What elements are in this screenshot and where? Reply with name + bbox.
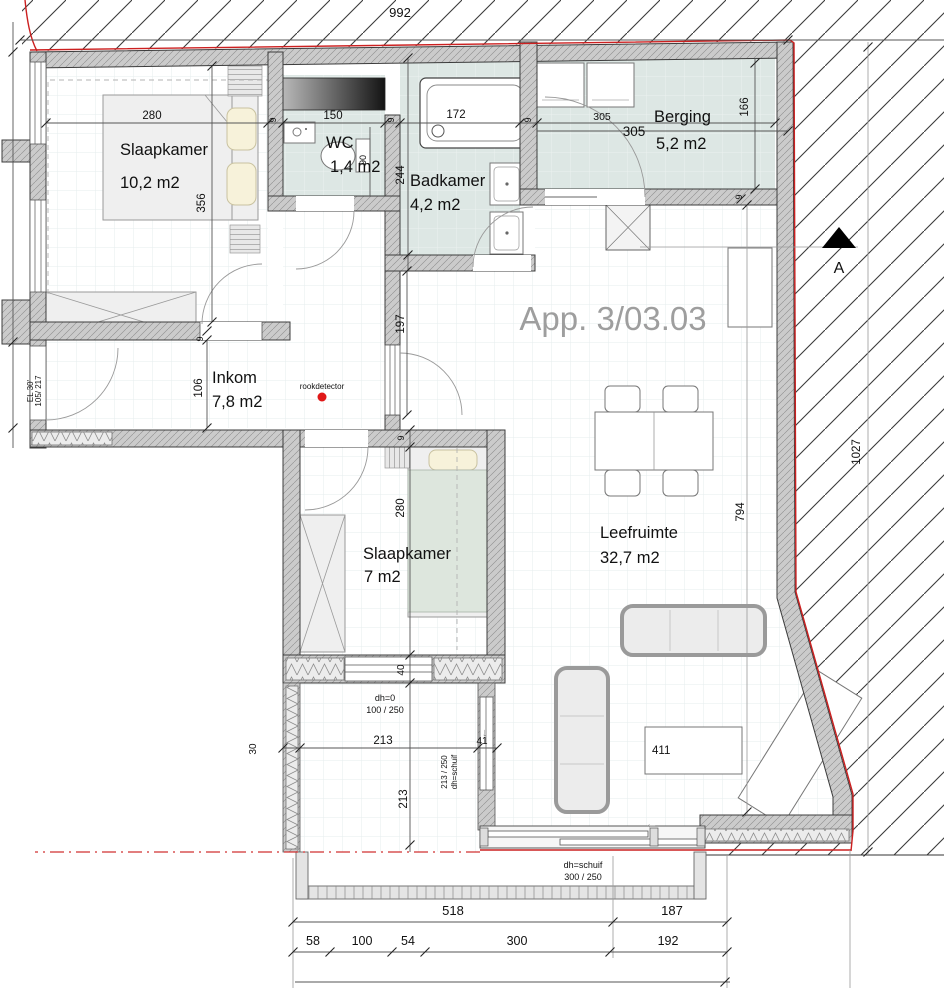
dim-inkom-depth: 106 xyxy=(193,378,205,397)
bathroom-sink xyxy=(490,163,523,205)
dim-sk2-depth: 280 xyxy=(395,498,407,517)
pillow xyxy=(429,450,477,470)
room-name-berging: Berging xyxy=(654,108,711,126)
dim-wc-width: 150 xyxy=(323,110,342,122)
dim-berg-width-a: 305 xyxy=(593,111,611,123)
slide-door-type: dh=schuif xyxy=(450,754,459,789)
bathtub xyxy=(420,78,530,148)
room-name-leefruimte: Leefruimte xyxy=(600,524,678,542)
wall-stub xyxy=(2,140,30,162)
dining-table xyxy=(595,412,713,470)
wall-wc-left xyxy=(268,52,283,211)
wc-sink xyxy=(284,122,315,143)
window xyxy=(30,200,46,292)
dim-518: 518 xyxy=(442,903,464,918)
bathroom-sink xyxy=(490,212,523,254)
floorplan-page: A 992 1027 Slaapkamer 10,2 m2 280 356 9 … xyxy=(0,0,946,1000)
smoke-detector-label: rookdetector xyxy=(300,382,345,391)
balcony-door-size: 100 / 250 xyxy=(366,705,404,715)
dim-wall: 9 xyxy=(734,194,744,199)
dim-54: 54 xyxy=(401,934,415,948)
smoke-detector xyxy=(318,393,327,402)
dim-sk1-width: 280 xyxy=(142,110,161,122)
apartment-title: App. 3/03.03 xyxy=(519,300,706,337)
shaft xyxy=(606,205,650,250)
dim-site-width: 992 xyxy=(389,5,411,20)
cabinet-tall xyxy=(728,248,772,327)
dim-leef-depth: 794 xyxy=(735,502,747,522)
room-area-slaapkamer1: 10,2 m2 xyxy=(120,174,180,192)
dim-wall: 9 xyxy=(523,117,533,122)
kitchen-counter xyxy=(283,78,385,110)
dim-58: 58 xyxy=(306,934,320,948)
dim-cabinet: 411 xyxy=(652,745,670,757)
room-area-inkom: 7,8 m2 xyxy=(212,393,262,411)
dim-hall-depth: 197 xyxy=(395,314,407,333)
slide-direction-arrow-icon: ← xyxy=(645,816,658,831)
room-name-badkamer: Badkamer xyxy=(410,172,486,190)
wardrobe xyxy=(300,515,345,652)
window xyxy=(30,62,46,144)
dim-bad-depth: 244 xyxy=(395,165,407,185)
slide-bottom-size: 300 / 250 xyxy=(564,872,602,882)
pillow xyxy=(227,108,256,150)
radiator xyxy=(228,66,262,96)
smoke-detector-icon xyxy=(318,393,327,402)
room-name-inkom: Inkom xyxy=(212,369,257,387)
dim-balc-depth: 213 xyxy=(398,789,410,808)
dim-wall: 9 xyxy=(386,117,396,122)
door-gap-bad xyxy=(473,255,531,271)
dim-tub: 172 xyxy=(446,109,465,121)
dim-192: 192 xyxy=(658,934,679,948)
dim-wc-depth: 90 xyxy=(358,155,368,165)
slide-direction-arrow-icon: ↓ xyxy=(482,727,488,739)
room-area-slaapkamer2: 7 m2 xyxy=(364,568,401,586)
dim-sk2-wall: 40 xyxy=(396,664,407,676)
dim-wall: 9 xyxy=(396,435,406,440)
wall-stub xyxy=(2,300,30,344)
room-name-slaapkamer1: Slaapkamer xyxy=(120,141,209,159)
sofa-horizontal xyxy=(622,606,765,655)
room-area-leefruimte: 32,7 m2 xyxy=(600,549,660,567)
room-name-slaapkamer2: Slaapkamer xyxy=(363,545,452,563)
dim-wall: 9 xyxy=(268,117,278,122)
dim-balc-width: 213 xyxy=(373,735,392,747)
dim-berg-depth: 166 xyxy=(739,97,751,116)
balcony-railing xyxy=(296,852,706,899)
entrance-door-size: 105/ 217 xyxy=(34,375,43,407)
dim-berg-width-b: 305 xyxy=(623,124,646,139)
dim-187: 187 xyxy=(661,903,683,918)
radiator xyxy=(230,225,260,253)
room-area-wc: 1,4 m2 xyxy=(330,158,380,176)
dim-wall: 9 xyxy=(195,336,205,341)
dim-300: 300 xyxy=(507,934,528,948)
sliding-window-band xyxy=(480,826,705,848)
window-dh0 xyxy=(345,657,432,681)
wall-sk2-right xyxy=(487,430,505,683)
room-area-badkamer: 4,2 m2 xyxy=(410,196,460,214)
dim-100: 100 xyxy=(352,934,373,948)
door-gap-wc xyxy=(296,196,354,211)
pillow xyxy=(227,163,256,205)
room-name-wc: WC xyxy=(326,134,354,152)
slide-door-size: 213 / 250 xyxy=(440,755,449,789)
door-gap-sk2 xyxy=(305,430,368,447)
section-letter: A xyxy=(834,260,845,277)
dim-balc-wall: 30 xyxy=(248,743,259,755)
slide-bottom-type: dh=schuif xyxy=(564,860,603,870)
floorplan-drawing: A 992 1027 Slaapkamer 10,2 m2 280 356 9 … xyxy=(0,0,946,1000)
dim-site-height: 1027 xyxy=(851,439,863,465)
room-area-berging: 5,2 m2 xyxy=(656,135,706,153)
balcony-door-height: dh=0 xyxy=(375,693,395,703)
sofa-vertical xyxy=(556,668,608,812)
dim-sk1-depth: 356 xyxy=(196,193,208,212)
wall-sk2-left xyxy=(283,430,300,683)
